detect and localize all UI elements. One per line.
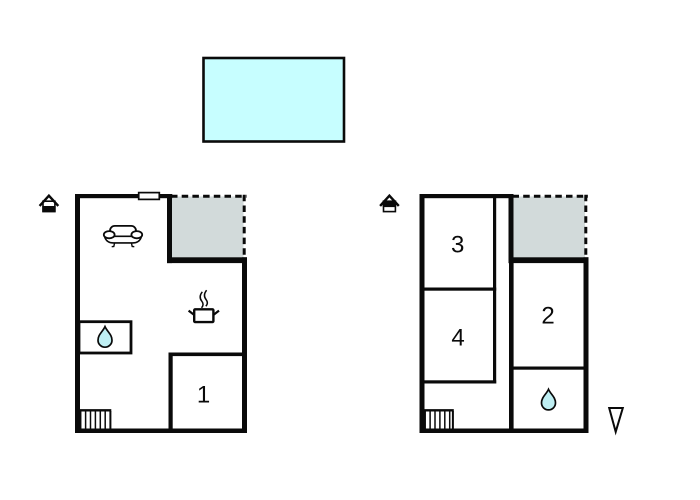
svg-text:4: 4 bbox=[451, 325, 464, 352]
svg-text:1: 1 bbox=[197, 382, 210, 409]
svg-text:2: 2 bbox=[541, 303, 554, 330]
svg-text:3: 3 bbox=[451, 231, 464, 258]
